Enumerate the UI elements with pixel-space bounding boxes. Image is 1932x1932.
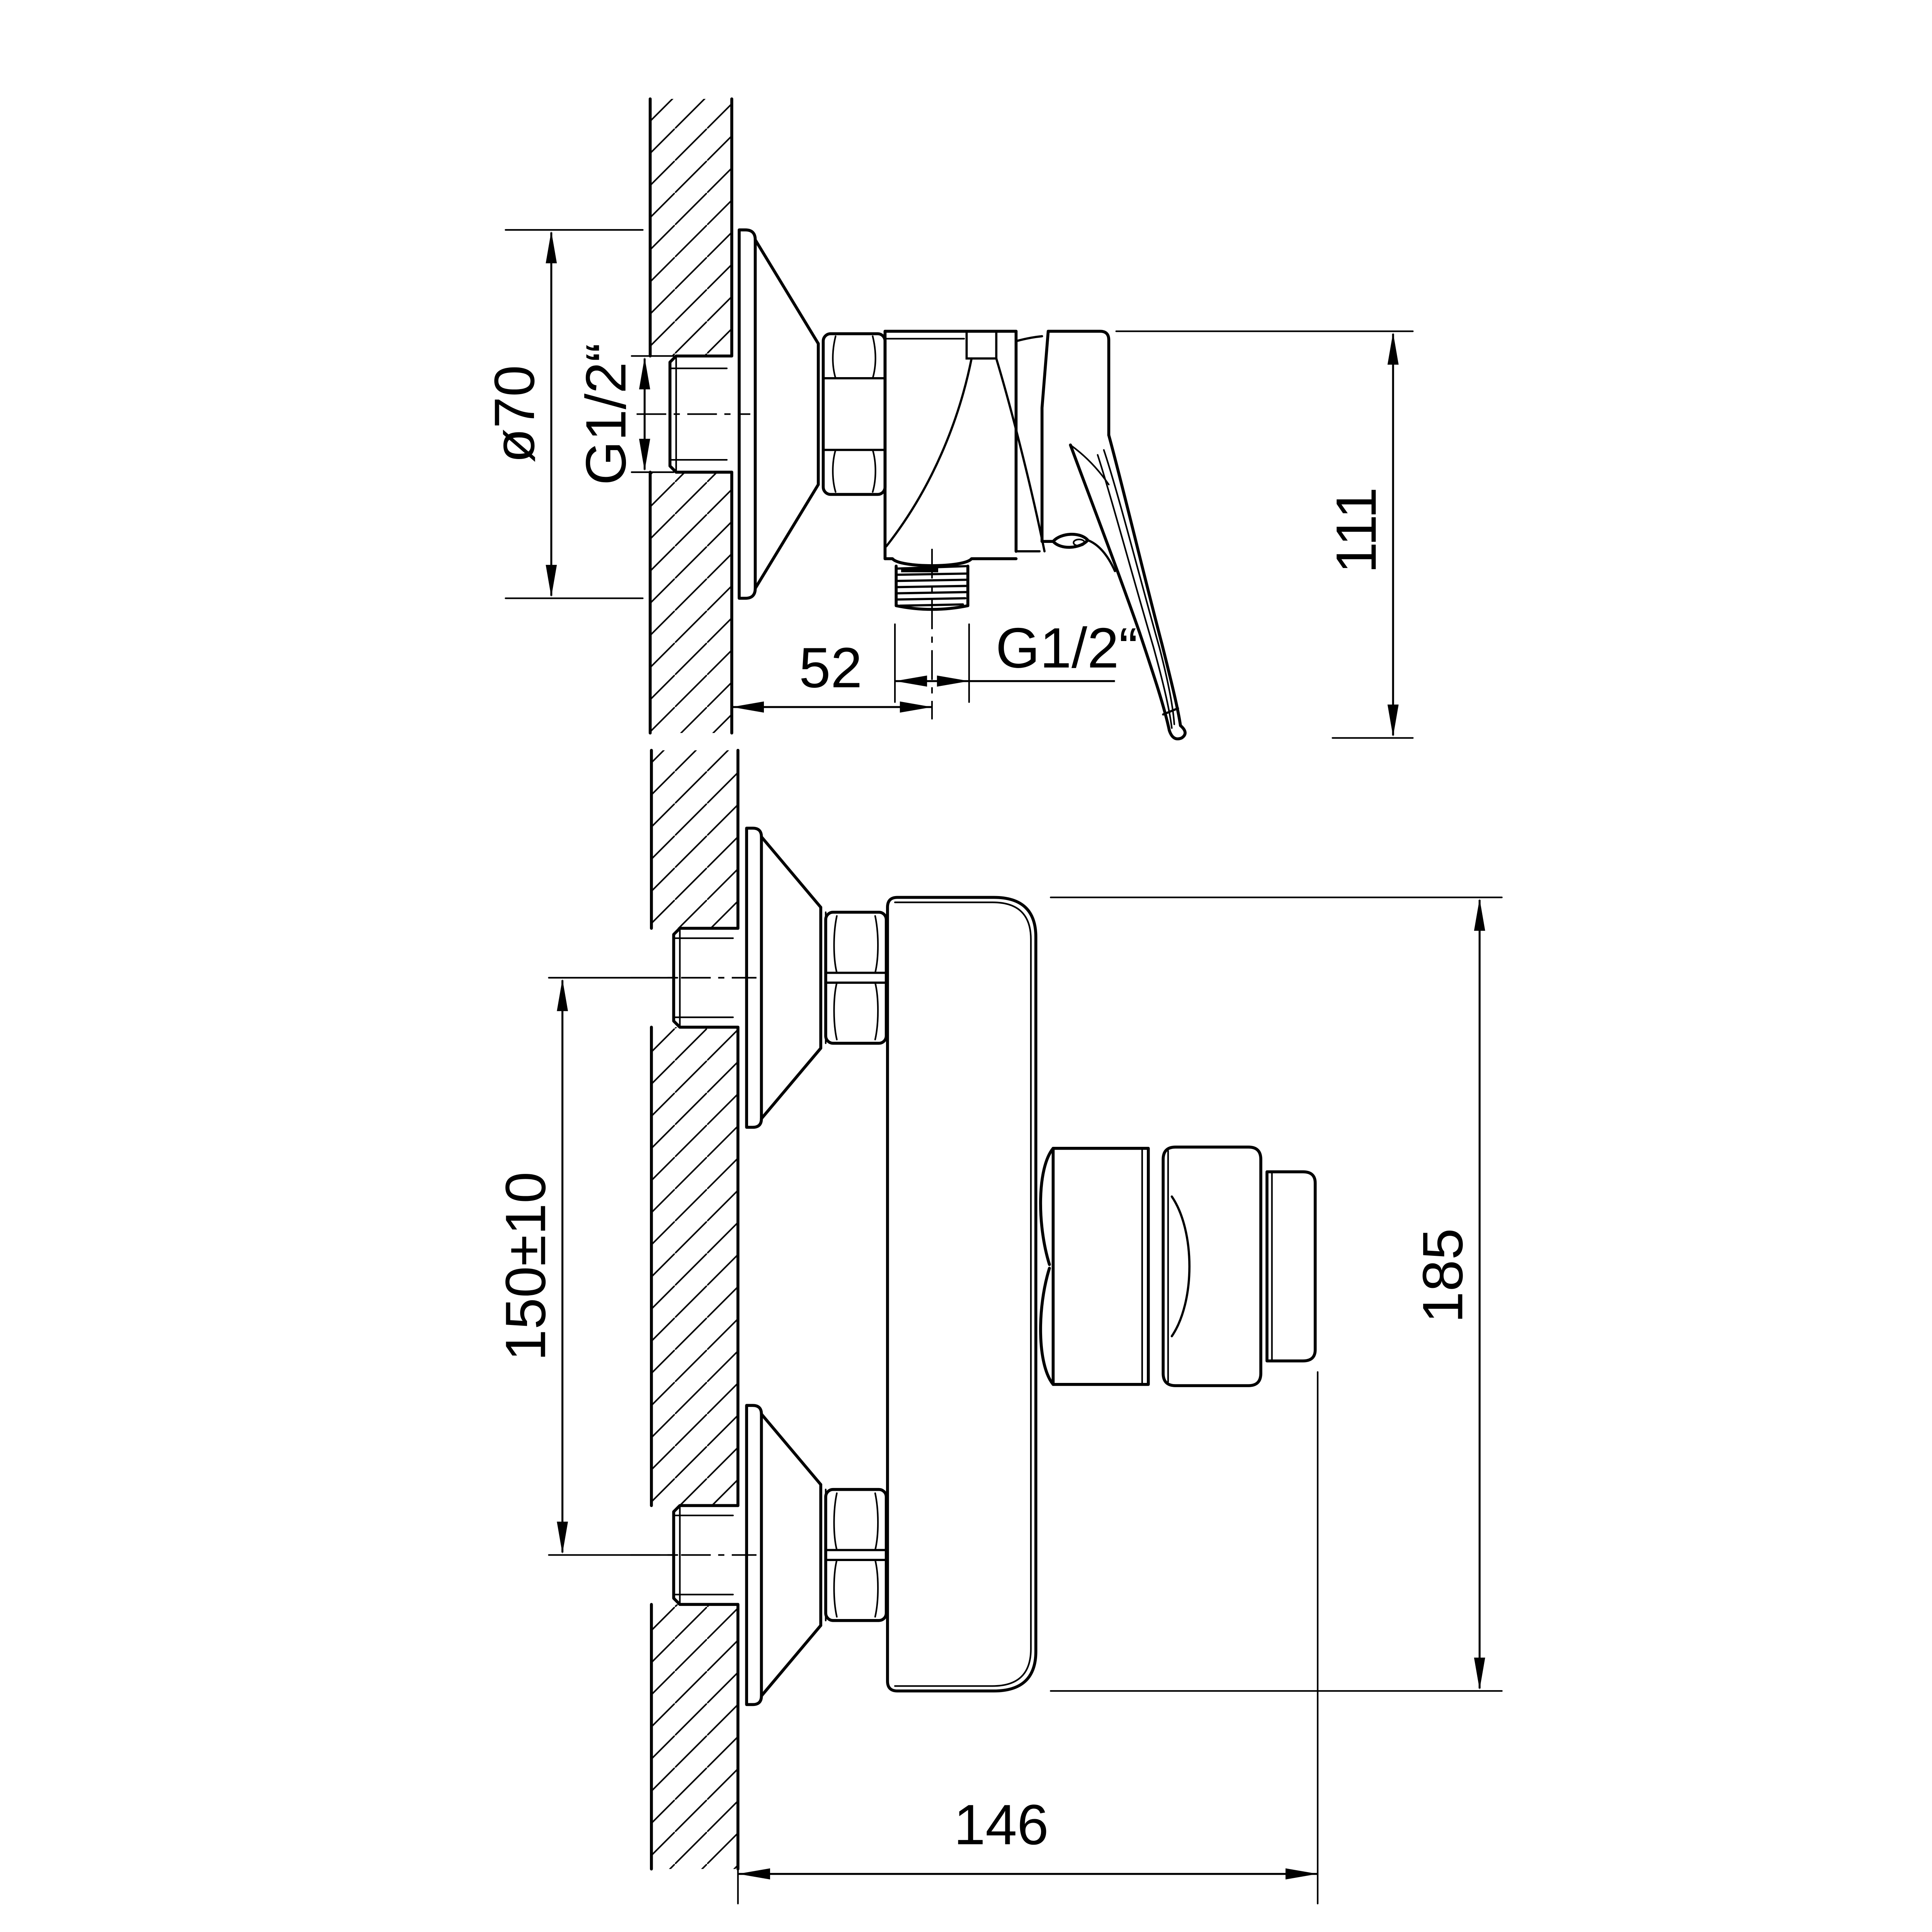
- faucet-body: [885, 331, 1044, 566]
- wall-section: [650, 99, 732, 733]
- dim-label-spacing: 150±10: [494, 1172, 558, 1361]
- dim-label-outlet-thread: G1/2“: [996, 616, 1138, 680]
- side-view: ø70 G1/2“ G1/2“ 52: [483, 99, 1413, 739]
- dim-label-height-111: 111: [1325, 487, 1388, 574]
- dimension-body-height: 185: [1051, 897, 1502, 1691]
- handle-dome: [1172, 1197, 1190, 1336]
- hex-nut: [823, 334, 885, 495]
- front-view: 150±10 185 146: [494, 750, 1502, 1904]
- faucet-body-front: [888, 897, 1036, 1691]
- dim-label-offset: 52: [799, 636, 862, 700]
- body-seam: [967, 331, 997, 358]
- supply-nipple: [636, 356, 750, 472]
- handle-end-cap: [1267, 1172, 1315, 1361]
- lever: [1070, 435, 1185, 739]
- shower-outlet: [896, 549, 968, 719]
- wall-section-2: [651, 750, 738, 1904]
- body-curve-left: [886, 359, 972, 546]
- dimension-connection-spacing: 150±10: [494, 978, 677, 1555]
- dim-label-diameter: ø70: [483, 365, 546, 463]
- dimension-depth: 146: [738, 1372, 1318, 1904]
- body-curve-right: [996, 359, 1044, 551]
- escutcheon: [739, 230, 823, 598]
- dimension-outlet-offset: 52: [732, 636, 932, 713]
- cartridge-handle: [1041, 1147, 1315, 1386]
- dim-label-supply-thread: G1/2“: [575, 343, 638, 485]
- faucet-dimension-drawing: ø70 G1/2“ G1/2“ 52: [0, 0, 1932, 1932]
- dim-label-depth: 146: [954, 1793, 1048, 1857]
- dim-label-height-185: 185: [1411, 1228, 1475, 1323]
